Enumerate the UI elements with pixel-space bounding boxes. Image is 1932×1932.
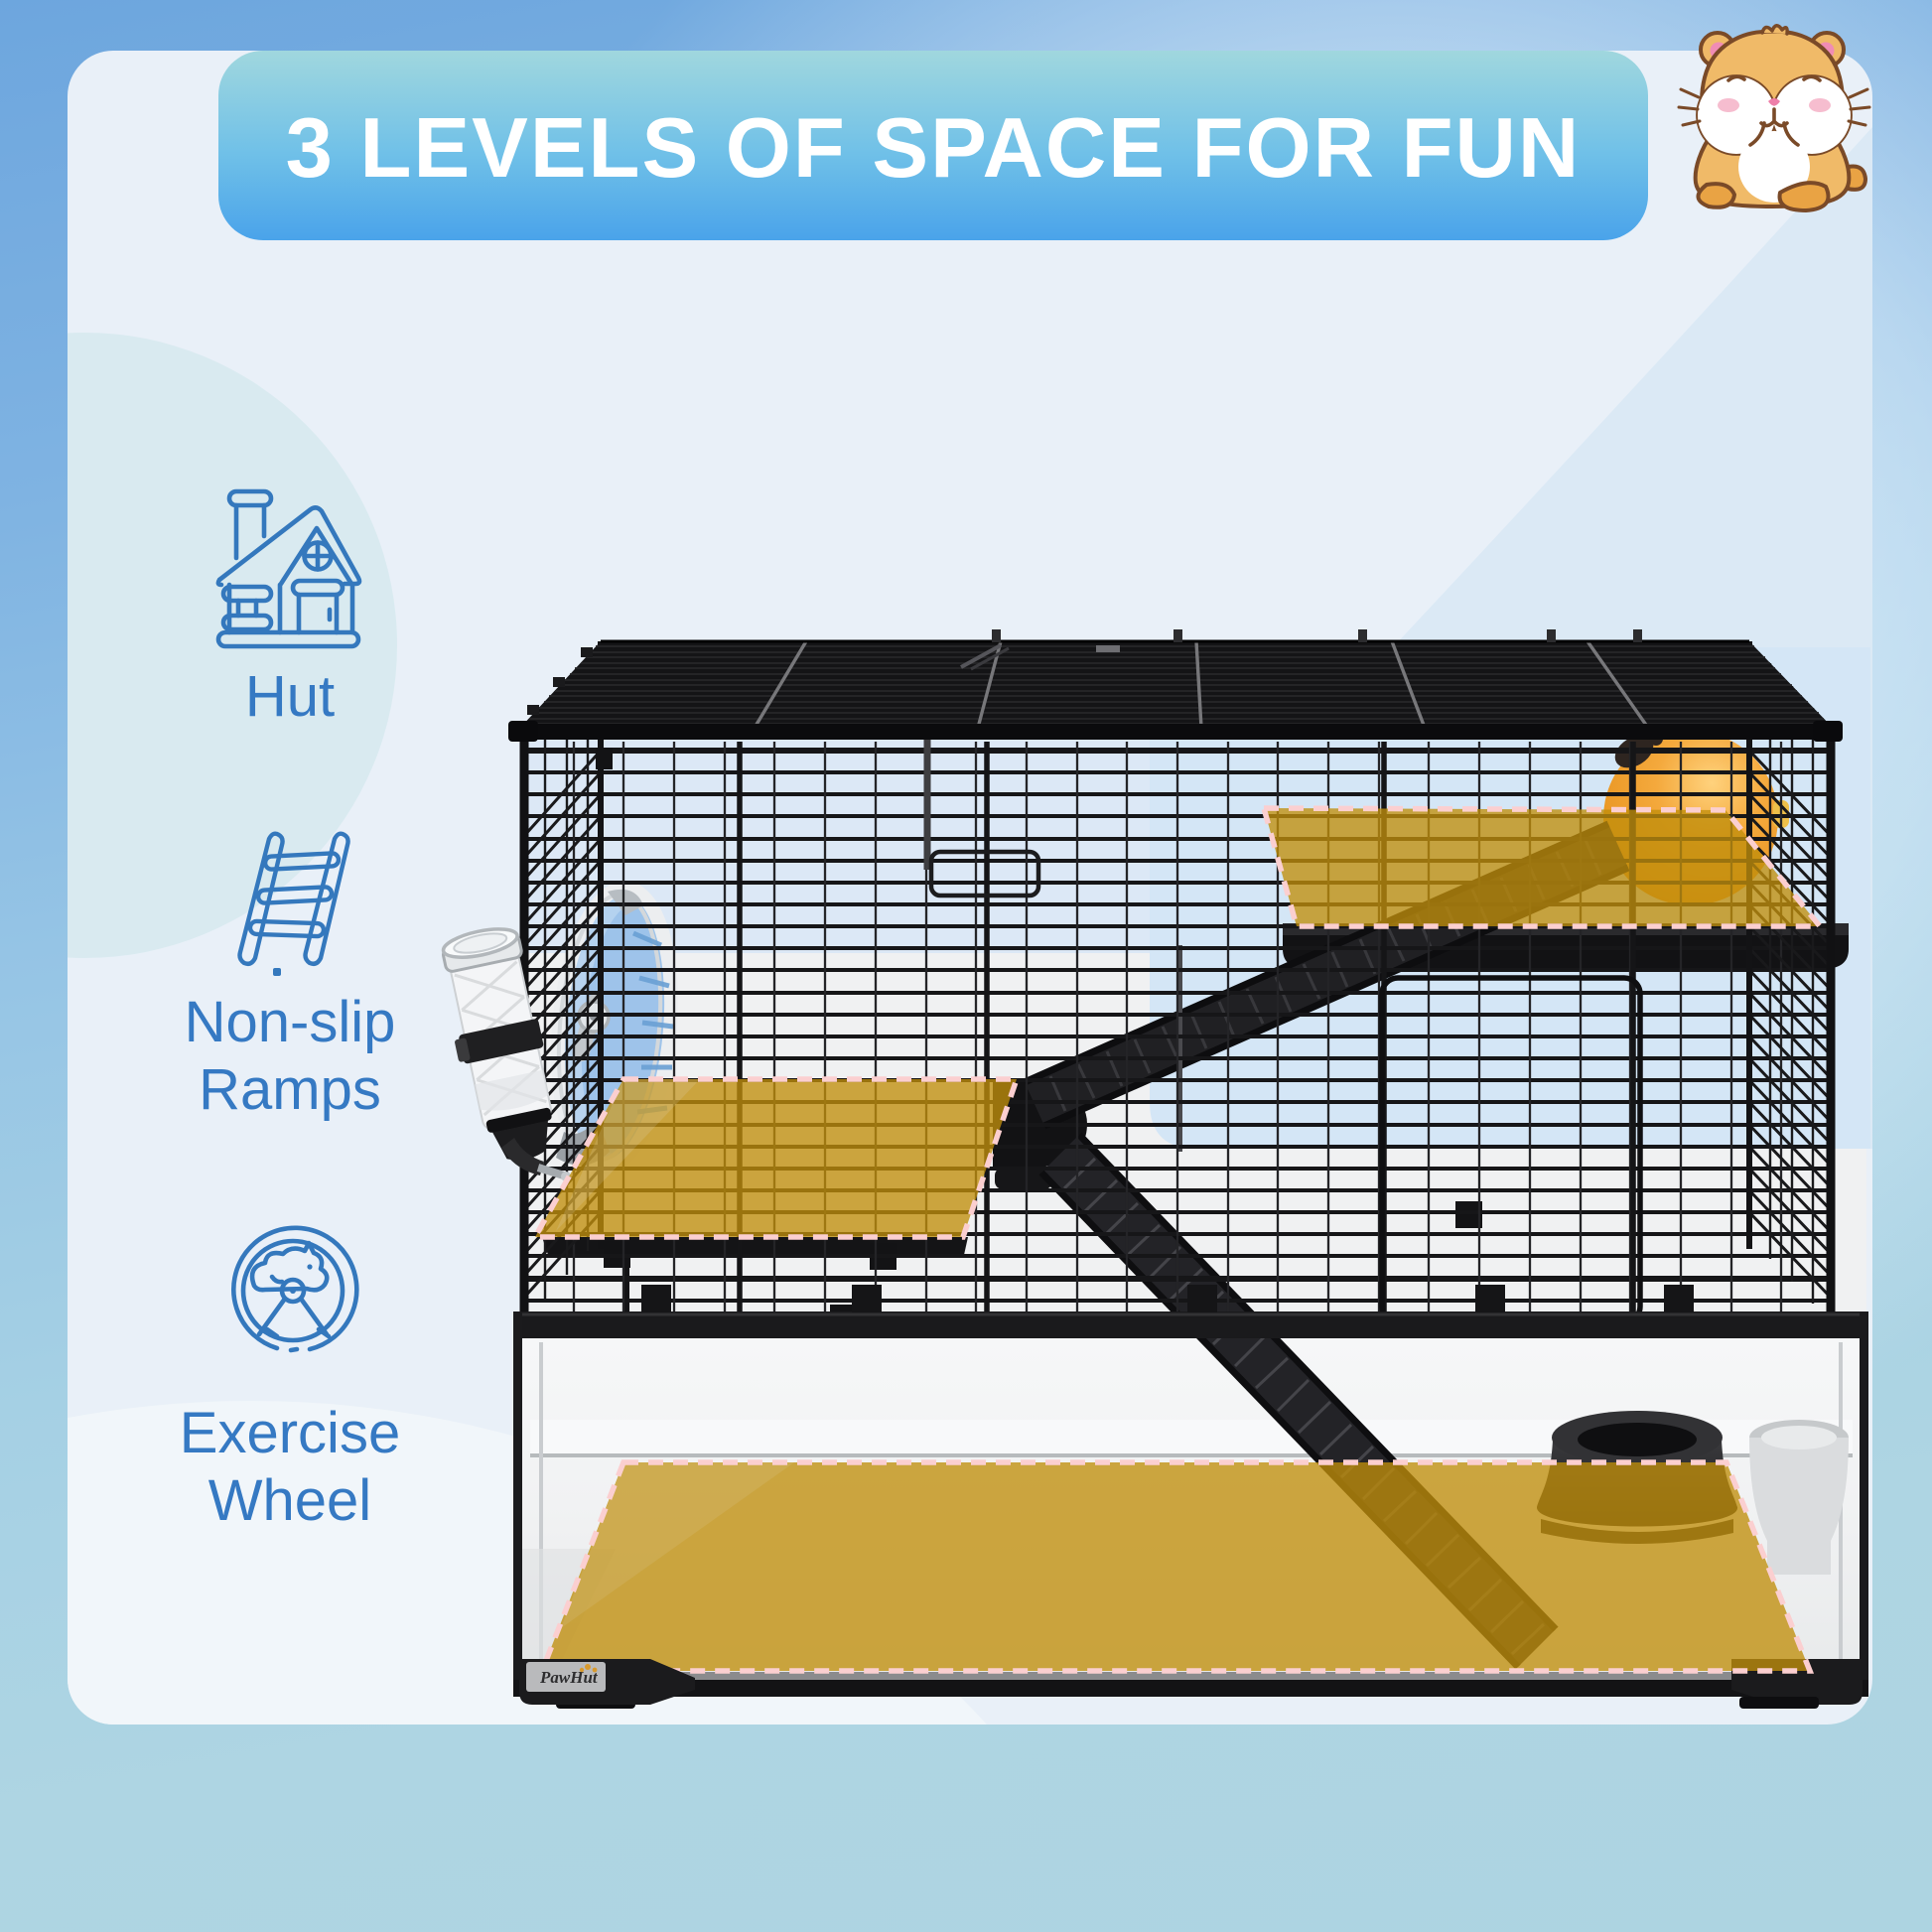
svg-text:PawHut: PawHut	[539, 1668, 599, 1687]
